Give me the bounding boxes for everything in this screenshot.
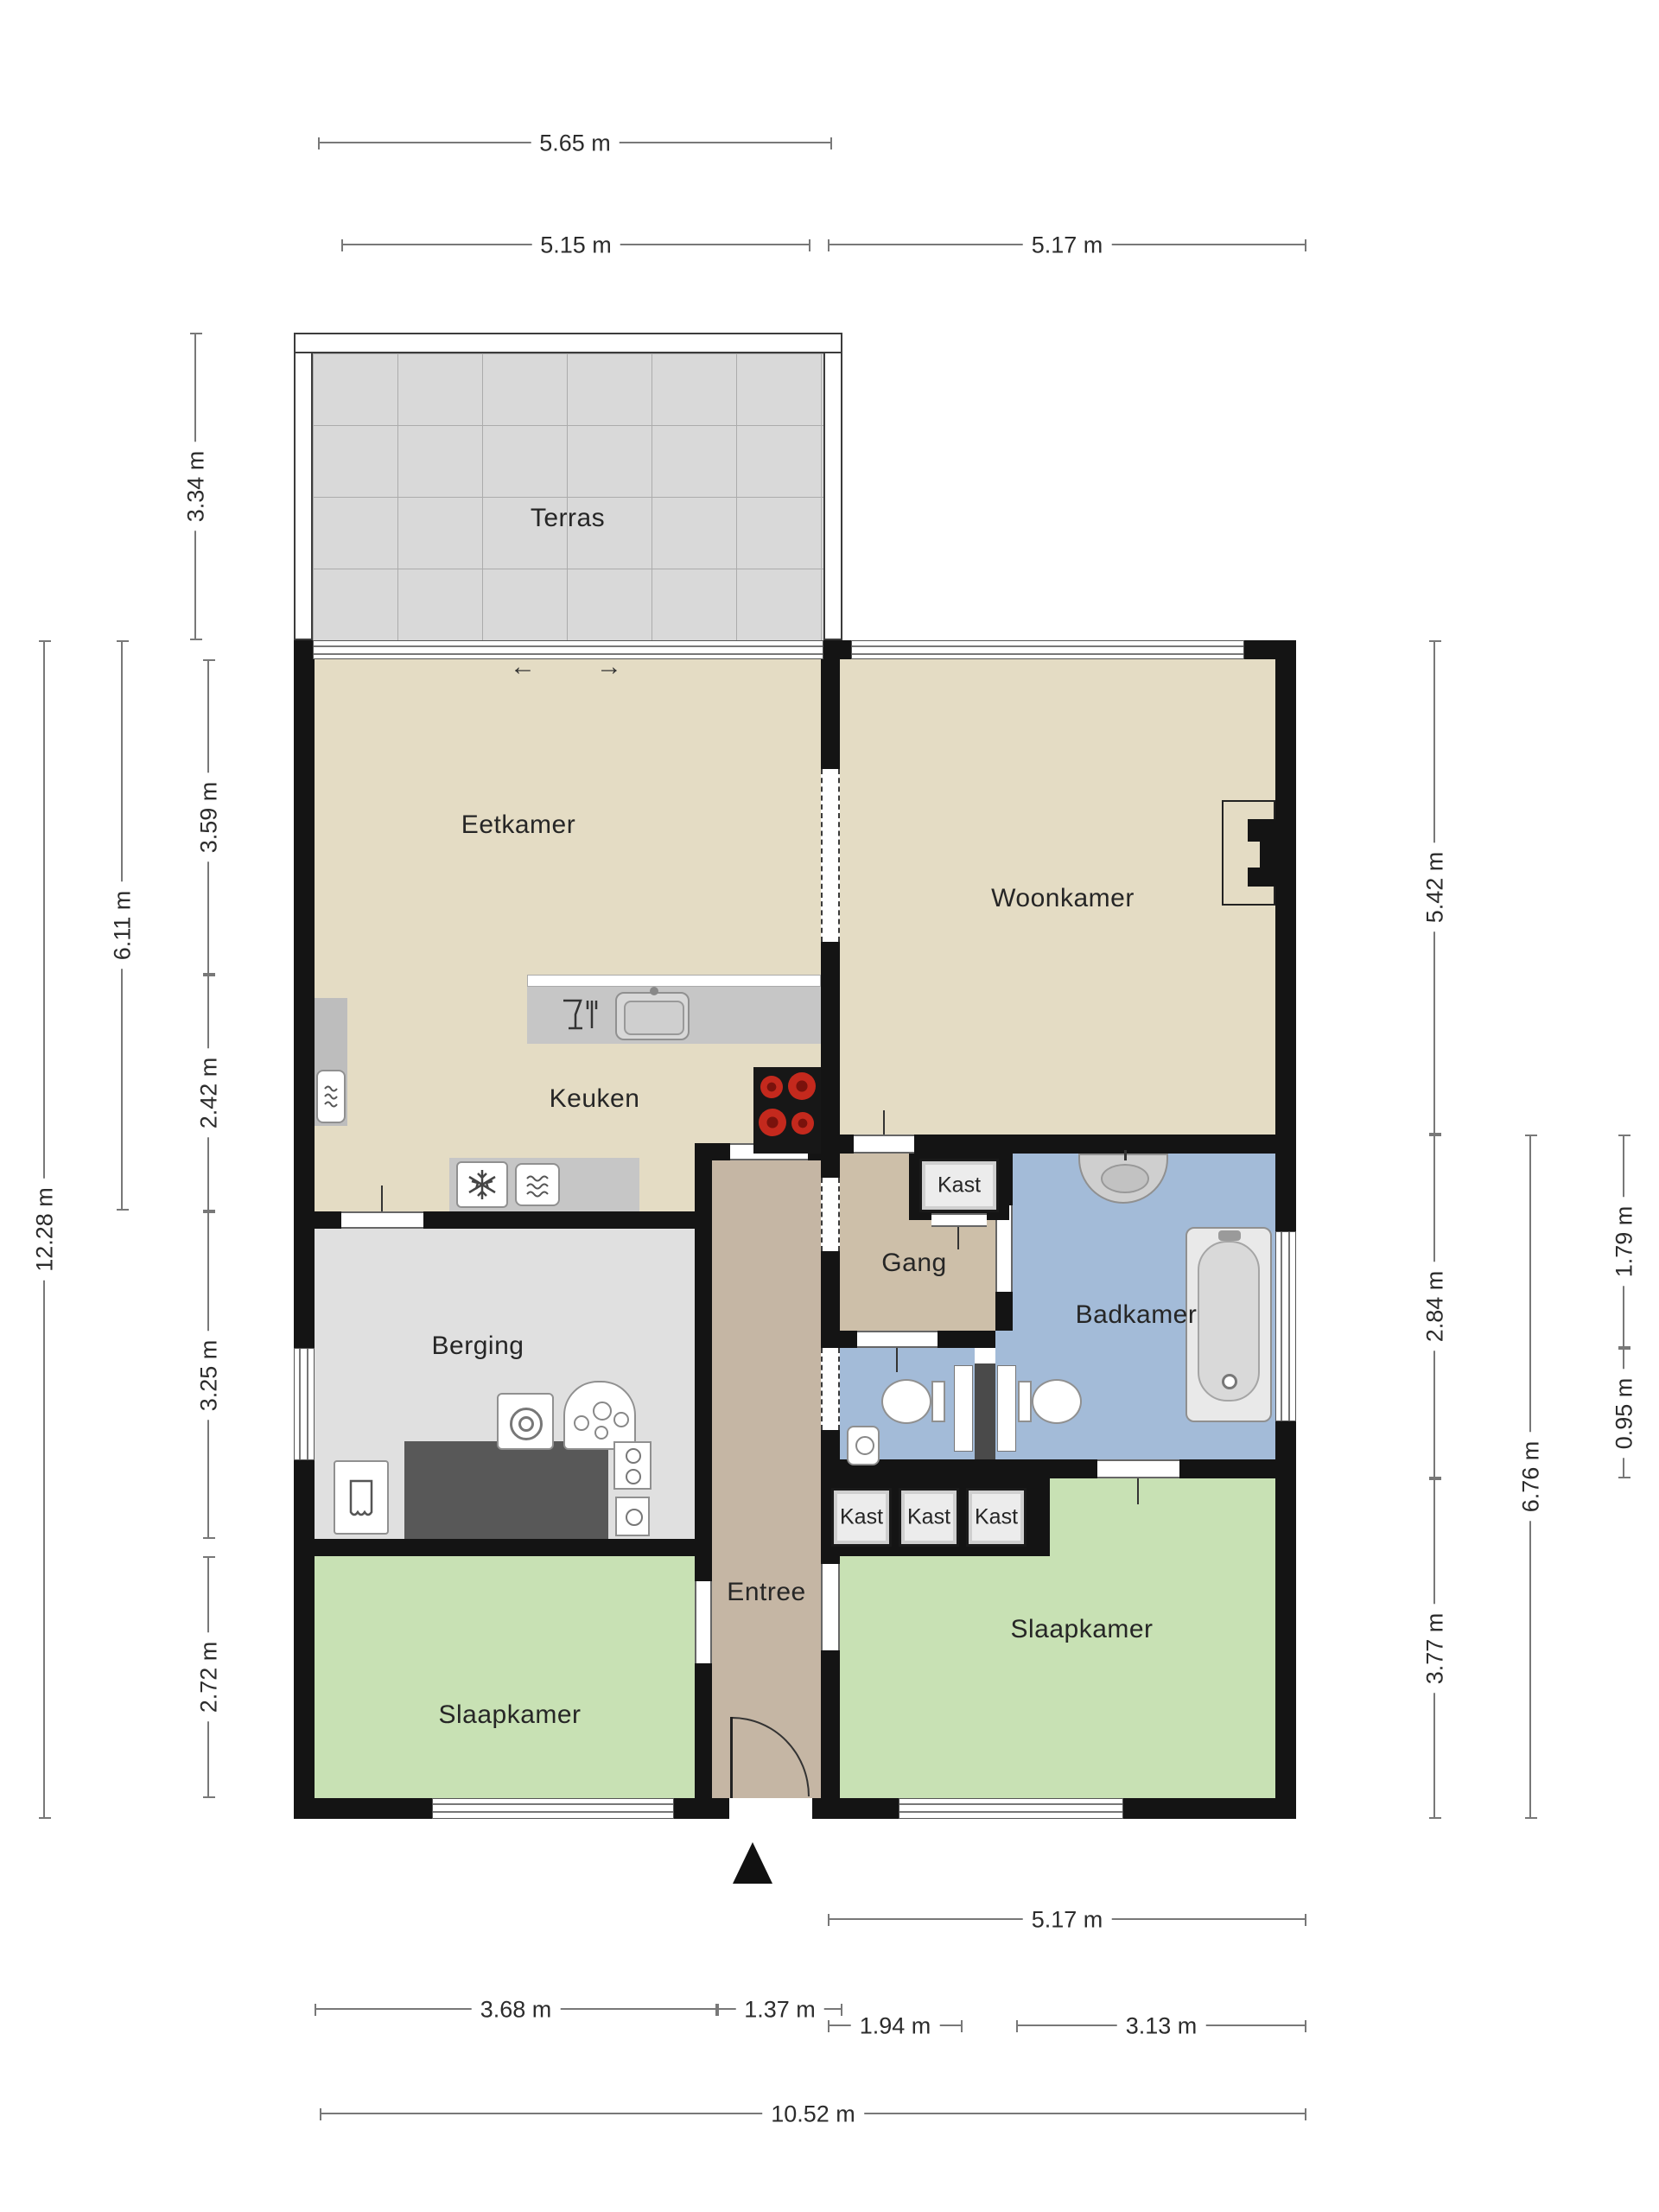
dim-bottom-313: 3.13 m [1016, 2024, 1306, 2026]
wall-post-terrace-right [823, 640, 851, 659]
closet-kast-3: Kast [966, 1488, 1027, 1547]
label-entree: Entree [727, 1578, 805, 1607]
label-badkamer: Badkamer [1076, 1300, 1198, 1330]
opening-sliding-entree-toilet [821, 1348, 840, 1430]
dim-right-095: 0.95 m [1623, 1348, 1624, 1478]
toilet-right-bowl [1032, 1379, 1082, 1424]
dim-top-565-label: 5.65 m [531, 130, 620, 158]
dim-left-334: 3.34 m [194, 333, 196, 640]
dim-left-334-label: 3.34 m [182, 442, 211, 531]
toilet-right-tank [1018, 1381, 1032, 1422]
bathtub-drain [1222, 1374, 1237, 1389]
room-eetkamer-keuken-floor [315, 659, 821, 1211]
room-slaapkamer-right-upper-floor [1050, 1478, 1275, 1556]
dim-bottom-194-label: 1.94 m [851, 2012, 940, 2041]
door-berging [341, 1211, 423, 1229]
dim-left-242-label: 2.42 m [195, 1049, 224, 1138]
dim-bottom-194: 1.94 m [828, 2024, 963, 2026]
opening-woonkamer-gang [854, 1135, 914, 1154]
door-tick-toilet [896, 1348, 898, 1372]
door-badkamer [1097, 1459, 1179, 1478]
dim-bottom-368-label: 3.68 m [472, 1996, 561, 2024]
wall-gang-toilet-2 [938, 1331, 995, 1348]
dim-left-359-label: 3.59 m [195, 772, 224, 861]
wall-toilet-stub [975, 1363, 995, 1459]
north-arrow-icon [733, 1842, 772, 1884]
closet-kast-1-label: Kast [840, 1505, 883, 1530]
dim-right-179: 1.79 m [1623, 1135, 1624, 1348]
kitchen-sink-tap [650, 987, 658, 995]
dim-right-179-label: 1.79 m [1611, 1197, 1639, 1286]
dim-top-565: 5.65 m [318, 142, 832, 143]
front-door-opening [729, 1798, 812, 1819]
woonkamer-niche-notch [1248, 842, 1260, 868]
dim-left-1228: 12.28 m [43, 640, 45, 1819]
dim-left-1228-label: 12.28 m [31, 1179, 60, 1281]
room-slaapkamer-right-floor [840, 1556, 1275, 1798]
dim-top-515: 5.15 m [341, 244, 810, 245]
wall-left-exterior-lower [294, 1460, 315, 1819]
wall-top-right-corner [1244, 640, 1296, 659]
label-woonkamer: Woonkamer [991, 884, 1135, 913]
dim-right-676-label: 6.76 m [1517, 1433, 1546, 1522]
wall-left-exterior-upper [294, 640, 315, 1348]
toilet-room-sink [847, 1426, 880, 1465]
window-berging-left [294, 1348, 315, 1460]
dim-bottom-1052-label: 10.52 m [762, 2101, 864, 2129]
window-badkamer-right [1275, 1231, 1296, 1421]
label-slaapkamer-left: Slaapkamer [438, 1700, 581, 1730]
dim-right-377: 3.77 m [1433, 1478, 1435, 1819]
closet-kast-3-label: Kast [975, 1505, 1018, 1530]
floorplan-canvas: ← → Kast Kast [0, 0, 1659, 2212]
window-woonkamer-top [851, 640, 1244, 659]
boiler [563, 1381, 636, 1450]
room-slaapkamer-left-floor [315, 1556, 695, 1798]
dim-bottom-137-label: 1.37 m [735, 1996, 824, 2024]
dim-left-611: 6.11 m [121, 640, 123, 1211]
dim-left-272-label: 2.72 m [195, 1633, 224, 1722]
opening-sliding-eet-woon [821, 769, 840, 942]
dim-bottom-137: 1.37 m [717, 2008, 842, 2010]
dim-left-359: 3.59 m [207, 659, 209, 975]
room-entree-floor [712, 1160, 821, 1798]
label-terras: Terras [531, 504, 605, 533]
meter-box-2 [615, 1497, 650, 1536]
dim-left-611-label: 6.11 m [109, 882, 137, 969]
dim-right-676: 6.76 m [1529, 1135, 1531, 1819]
wall-right-exterior-upper [1275, 640, 1296, 1231]
dim-right-542: 5.42 m [1433, 640, 1435, 1135]
oven-column [316, 1070, 346, 1123]
wall-entree-left-lower [695, 1663, 712, 1798]
wall-gang-badkamer-2 [995, 1292, 1013, 1331]
toilet-left-tank [931, 1381, 945, 1422]
label-keuken: Keuken [550, 1084, 640, 1114]
dim-right-542-label: 5.42 m [1421, 843, 1450, 932]
dim-left-242: 2.42 m [207, 975, 209, 1211]
label-eetkamer: Eetkamer [461, 810, 575, 840]
wall-right-exterior-lower [1275, 1421, 1296, 1819]
closet-kast-1: Kast [831, 1488, 892, 1547]
dim-right-095-label: 0.95 m [1611, 1369, 1639, 1458]
opening-tick-kast-gang [957, 1227, 959, 1249]
door-toilet [857, 1331, 938, 1348]
door-entree-slaapkamer-right [821, 1564, 840, 1650]
label-gang: Gang [881, 1249, 946, 1278]
door-leaf-toilet-left [954, 1365, 973, 1452]
slide-arrow-right-icon: → [596, 652, 622, 682]
window-slaapkamer-left-bottom [432, 1798, 674, 1819]
closet-kast-2: Kast [899, 1488, 959, 1547]
dim-right-284: 2.84 m [1433, 1135, 1435, 1478]
front-door-leaf [730, 1717, 733, 1798]
dim-left-325: 3.25 m [207, 1211, 209, 1539]
dim-top-515-label: 5.15 m [531, 232, 620, 260]
wall-divider-eet-woon-2 [821, 942, 840, 1178]
wall-berging-slaapkamer [294, 1539, 695, 1556]
label-berging: Berging [432, 1332, 524, 1361]
stove-burner-3 [759, 1109, 786, 1136]
wall-bottom-2 [674, 1798, 729, 1819]
dim-top-517-label: 5.17 m [1023, 232, 1112, 260]
terrace-wall-top [294, 333, 842, 353]
wall-woonkamer-bottom-1 [840, 1135, 854, 1154]
wall-bottom-1 [294, 1798, 432, 1819]
terrace-wall-right [823, 352, 842, 640]
closet-kast-gang-label: Kast [938, 1173, 981, 1198]
stove-burner-1 [760, 1076, 783, 1098]
wall-entree-right-3 [821, 1650, 840, 1798]
dim-left-325-label: 3.25 m [195, 1331, 224, 1420]
stove-burner-4 [791, 1112, 814, 1135]
toilet-left-bowl [881, 1379, 931, 1424]
wall-entree-left-upper [695, 1143, 712, 1581]
door-tick-badkamer [1137, 1478, 1139, 1504]
bathtub [1185, 1227, 1272, 1422]
dim-right-284-label: 2.84 m [1421, 1262, 1450, 1351]
slide-arrow-left-icon: ← [510, 652, 536, 682]
wall-badkamer-bottom-2 [1179, 1459, 1275, 1478]
dim-bottom-517: 5.17 m [828, 1918, 1306, 1920]
badkamer-sink-tap [1124, 1150, 1127, 1160]
dim-bottom-368: 3.68 m [315, 2008, 717, 2010]
wall-entree-right-1 [821, 1251, 840, 1348]
dim-left-272: 2.72 m [207, 1556, 209, 1798]
wall-keuken-berging-1 [294, 1211, 341, 1229]
label-slaapkamer-right: Slaapkamer [1010, 1615, 1153, 1644]
dim-right-377-label: 3.77 m [1421, 1605, 1450, 1694]
wall-divider-eet-woon-1 [821, 659, 840, 769]
window-slaapkamer-right-bottom [899, 1798, 1123, 1819]
dim-bottom-313-label: 3.13 m [1117, 2012, 1206, 2041]
opening-kast-gang [931, 1213, 987, 1227]
berging-dark-counter [404, 1441, 608, 1539]
dim-top-517: 5.17 m [828, 244, 1306, 245]
kitchen-counter-top-edge [527, 975, 821, 987]
closet-kast-gang: Kast [919, 1159, 999, 1212]
microwave [515, 1163, 560, 1206]
wall-bottom-3 [812, 1798, 899, 1819]
door-leaf-toilet-right [997, 1365, 1016, 1452]
curtain-cabinet [334, 1460, 389, 1535]
stove-burner-2 [788, 1072, 816, 1100]
room-terras-floor [313, 353, 823, 640]
freezer [456, 1161, 508, 1208]
snowflake-icon [458, 1163, 506, 1206]
opening-tick-woonkamer [883, 1110, 885, 1135]
wall-woonkamer-bottom-2 [914, 1135, 1275, 1154]
opening-sliding-entree-gang [821, 1178, 840, 1251]
wall-keuken-berging-2 [423, 1211, 695, 1229]
door-entree-slaapkamer-left [695, 1581, 712, 1663]
bathtub-tap [1218, 1230, 1241, 1241]
meter-box-1 [613, 1441, 652, 1490]
washing-machine [497, 1393, 554, 1450]
wall-entree-top-1 [712, 1143, 730, 1160]
terrace-wall-left [294, 352, 313, 640]
wall-bottom-4 [1123, 1798, 1296, 1819]
kitchen-sink [615, 992, 690, 1040]
window-eetkamer-top [313, 640, 823, 659]
wall-gang-toilet-1 [840, 1331, 857, 1348]
door-tick-berging [381, 1185, 383, 1211]
dim-bottom-1052: 10.52 m [320, 2113, 1306, 2114]
dishwasher-icon [553, 994, 601, 1039]
closet-kast-2-label: Kast [907, 1505, 950, 1530]
stove [753, 1067, 821, 1154]
dim-bottom-517-label: 5.17 m [1023, 1906, 1112, 1935]
